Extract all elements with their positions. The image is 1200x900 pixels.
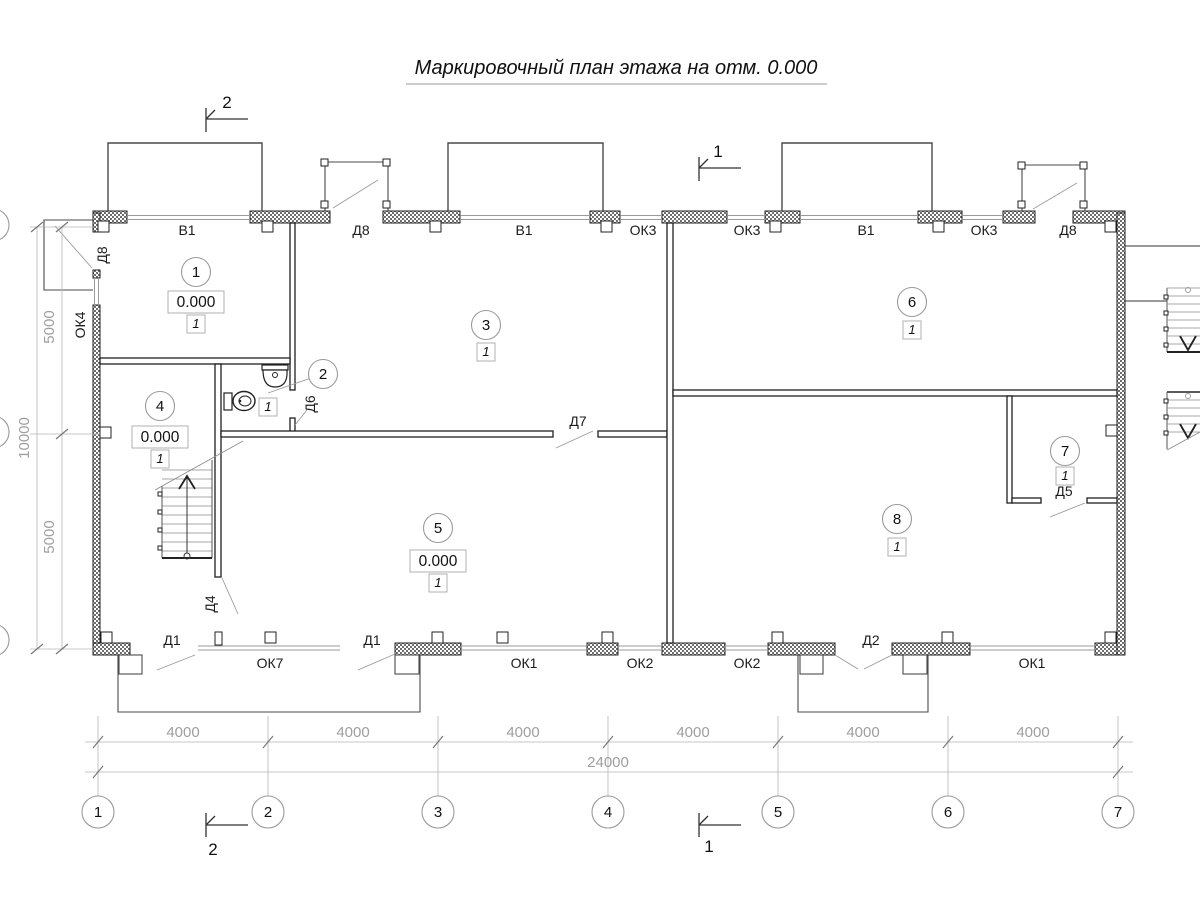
svg-text:1: 1 xyxy=(704,837,713,856)
external-stair xyxy=(1125,246,1200,450)
axis-2: 2 xyxy=(264,804,272,821)
svg-text:1: 1 xyxy=(264,399,271,414)
room-5-annotation: 5 0.000 1 xyxy=(410,514,466,593)
label-ok2-bottom-1: ОК2 xyxy=(627,655,654,671)
label-ok4-left: ОК4 xyxy=(72,311,88,338)
section-mark-2-bottom: 2 xyxy=(206,813,248,859)
svg-text:1: 1 xyxy=(1061,468,1068,483)
svg-text:5000: 5000 xyxy=(41,310,58,343)
axis-7: 7 xyxy=(1114,804,1122,821)
label-d8-left: Д8 xyxy=(94,246,110,263)
axis-bubbles: 1 2 3 4 5 6 7 xyxy=(82,796,1134,828)
svg-text:2: 2 xyxy=(208,840,217,859)
svg-text:1: 1 xyxy=(192,264,200,281)
svg-text:1: 1 xyxy=(893,539,900,554)
room-3-annotation: 3 1 xyxy=(472,311,501,362)
svg-text:5000: 5000 xyxy=(41,520,58,553)
sink xyxy=(262,365,288,387)
axis-6: 6 xyxy=(944,804,952,821)
room-annotations: 1 0.000 1 2 1 3 1 4 0.000 1 5 xyxy=(132,258,1080,593)
label-v1-top-1: В1 xyxy=(178,222,195,238)
svg-text:8: 8 xyxy=(893,511,901,528)
label-ok1-bottom-1: ОК1 xyxy=(511,655,538,671)
svg-text:4000: 4000 xyxy=(846,724,879,741)
svg-text:3: 3 xyxy=(482,317,490,334)
bay-window-outlines xyxy=(108,143,932,211)
door-leaders xyxy=(157,378,1085,670)
room-4-annotation: 4 0.000 1 xyxy=(132,392,188,469)
left-dimensions: 5000 5000 10000 xyxy=(0,209,100,656)
svg-text:4000: 4000 xyxy=(336,724,369,741)
room-6-annotation: 6 1 xyxy=(898,288,927,340)
section-mark-2-top: 2 xyxy=(206,93,248,132)
label-ok3-top-2: ОК3 xyxy=(734,222,761,238)
opening-labels: В1 Д8 В1 ОК3 ОК3 В1 ОК3 Д8 Д8 ОК4 Д6 Д7 … xyxy=(72,222,1077,671)
svg-text:0.000: 0.000 xyxy=(141,429,180,446)
page-title: Маркировочный план этажа на отм. 0.000 xyxy=(415,57,818,79)
label-d8-top-2: Д8 xyxy=(1059,222,1076,238)
stair-down-arrow xyxy=(1180,336,1196,350)
svg-text:1: 1 xyxy=(908,322,915,337)
svg-text:4000: 4000 xyxy=(676,724,709,741)
label-d1-right: Д1 xyxy=(363,632,380,648)
label-ok3-top-3: ОК3 xyxy=(971,222,998,238)
svg-text:2: 2 xyxy=(319,366,327,383)
floor-plan-drawing: Маркировочный план этажа на отм. 0.000 xyxy=(0,0,1200,900)
svg-text:1: 1 xyxy=(156,451,163,466)
svg-text:1: 1 xyxy=(434,575,441,590)
door-leaf-d4 xyxy=(215,632,222,645)
label-d7: Д7 xyxy=(569,413,586,429)
label-d1-left: Д1 xyxy=(163,632,180,648)
svg-text:4000: 4000 xyxy=(166,724,199,741)
section-mark-1-top: 1 xyxy=(699,142,741,181)
svg-text:1: 1 xyxy=(192,316,199,331)
label-v1-top-2: В1 xyxy=(515,222,532,238)
plan-title: Маркировочный план этажа на отм. 0.000 xyxy=(406,57,827,84)
label-d8-top-1: Д8 xyxy=(352,222,369,238)
svg-text:7: 7 xyxy=(1061,443,1069,460)
axis-4: 4 xyxy=(604,804,612,821)
label-d2: Д2 xyxy=(862,632,879,648)
svg-text:4000: 4000 xyxy=(1016,724,1049,741)
svg-text:2: 2 xyxy=(222,93,231,112)
label-d4: Д4 xyxy=(202,595,218,612)
wc-fixtures xyxy=(224,365,288,411)
svg-text:4: 4 xyxy=(156,398,164,415)
axis-3: 3 xyxy=(434,804,442,821)
label-ok7: ОК7 xyxy=(257,655,284,671)
label-ok1-bottom-2: ОК1 xyxy=(1019,655,1046,671)
dim-left-total: 10000 xyxy=(16,417,33,459)
floor-plan-page: Маркировочный план этажа на отм. 0.000 xyxy=(0,0,1200,900)
svg-text:0.000: 0.000 xyxy=(419,553,458,570)
section-marks: 2 1 2 1 xyxy=(206,93,741,859)
svg-text:5: 5 xyxy=(434,520,442,537)
interior-walls xyxy=(100,223,1117,643)
dim-total: 24000 xyxy=(587,754,629,771)
svg-text:4000: 4000 xyxy=(506,724,539,741)
room-7-annotation: 7 1 xyxy=(1051,437,1080,486)
svg-text:1: 1 xyxy=(482,344,489,359)
label-ok2-bottom-2: ОК2 xyxy=(734,655,761,671)
label-ok3-top-1: ОК3 xyxy=(630,222,657,238)
section-mark-1-bottom: 1 xyxy=(699,813,741,856)
room-8-annotation: 8 1 xyxy=(883,505,912,557)
svg-text:6: 6 xyxy=(908,294,916,311)
axis-1: 1 xyxy=(94,804,102,821)
label-d6: Д6 xyxy=(302,395,318,412)
svg-text:0.000: 0.000 xyxy=(177,294,216,311)
axis-5: 5 xyxy=(774,804,782,821)
label-d5: Д5 xyxy=(1055,483,1072,499)
svg-text:1: 1 xyxy=(713,142,722,161)
label-v1-top-3: В1 xyxy=(857,222,874,238)
toilet xyxy=(224,392,255,411)
room-1-annotation: 1 0.000 1 xyxy=(168,258,224,334)
bottom-dimensions: 4000 4000 4000 4000 4000 4000 24000 xyxy=(85,716,1133,796)
